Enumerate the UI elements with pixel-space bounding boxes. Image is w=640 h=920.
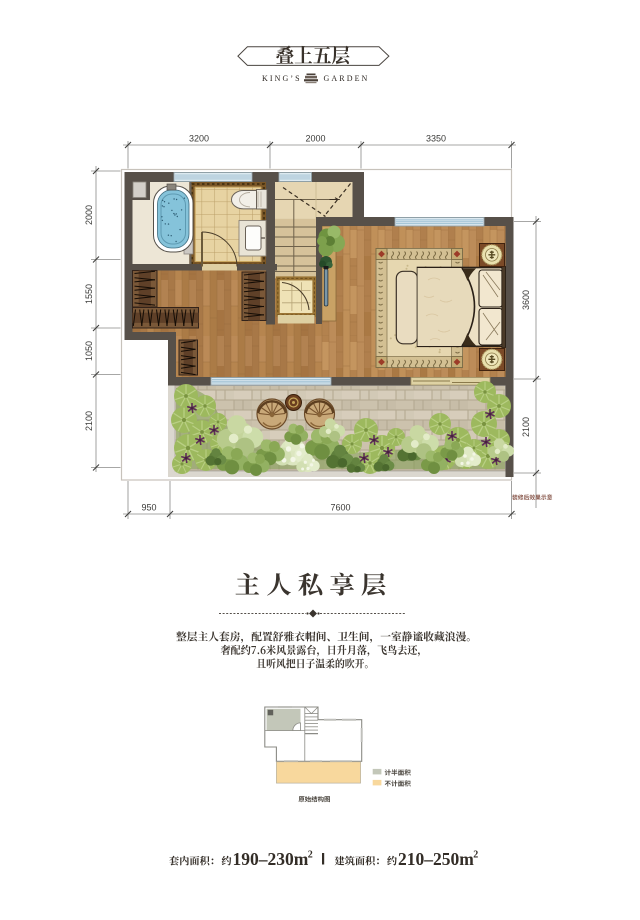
svg-text:1050: 1050 [84, 341, 94, 361]
svg-text:2000: 2000 [84, 205, 94, 225]
svg-text:GARDEN: GARDEN [324, 74, 370, 83]
svg-text:3200: 3200 [189, 134, 209, 144]
svg-text:KING’S: KING’S [262, 74, 302, 83]
svg-text:2000: 2000 [305, 134, 325, 144]
svg-text:950: 950 [141, 503, 156, 513]
svg-text:2: 2 [308, 850, 313, 861]
svg-text:2100: 2100 [84, 411, 94, 431]
svg-text:7600: 7600 [330, 503, 350, 513]
svg-text:190–230m: 190–230m [233, 849, 309, 869]
svg-text:2: 2 [473, 850, 478, 861]
svg-text:210–250m: 210–250m [398, 849, 474, 869]
svg-text:3350: 3350 [426, 134, 446, 144]
svg-text:2100: 2100 [521, 417, 531, 437]
svg-text:1550: 1550 [84, 284, 94, 304]
svg-text:3600: 3600 [521, 290, 531, 310]
